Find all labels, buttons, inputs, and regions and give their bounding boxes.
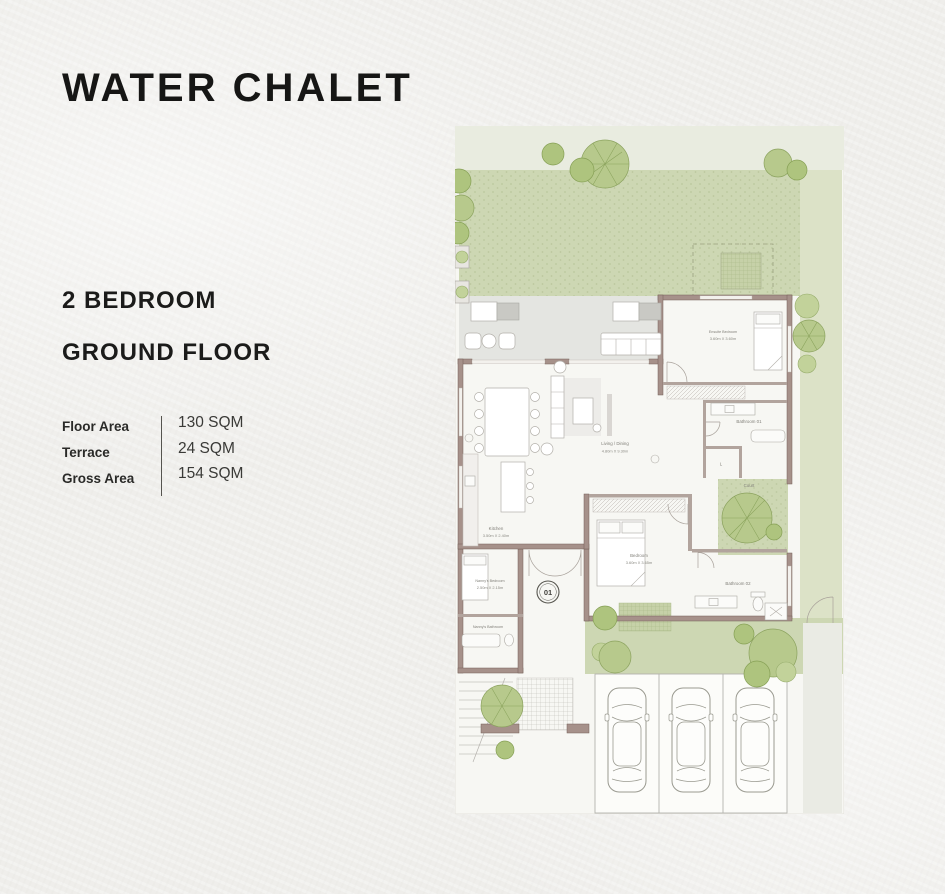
area-row-label: Floor Area	[62, 414, 161, 440]
area-row-label: Terrace	[62, 440, 161, 466]
room-label-bedroom: Bedroom	[630, 553, 648, 558]
unit-type-label: 2 BEDROOM	[62, 287, 216, 315]
area-row-value: 154 SQM	[178, 461, 243, 487]
room-dims-bedroom: 3.60m X 3.65m	[626, 560, 652, 565]
area-table-divider	[161, 416, 162, 496]
side-garden-strip	[800, 170, 842, 621]
area-table-values: 130 SQM 24 SQM 154 SQM	[178, 410, 243, 487]
area-row-value: 24 SQM	[178, 436, 243, 462]
area-table: Floor Area Terrace Gross Area 130 SQM 24…	[62, 414, 243, 496]
unit-number-badge: 01	[537, 581, 559, 603]
room-label-court: Court	[744, 483, 756, 488]
outdoor-shower	[765, 603, 787, 620]
room-label-kitchen: Kitchen	[489, 526, 504, 531]
area-row-value: 130 SQM	[178, 410, 243, 436]
entry-deck	[517, 678, 573, 730]
room-label-living: Living / Dining	[601, 441, 629, 446]
car-icon	[605, 688, 649, 792]
room-dims-ensuite: 3.60m X 3.60m	[710, 336, 736, 341]
floor-label: GROUND FLOOR	[62, 339, 271, 367]
car-icon	[669, 688, 713, 792]
room-label-bathroom02: Bathroom 02	[725, 581, 751, 586]
room-label-bathroom01: Bathroom 01	[736, 419, 762, 424]
page-title: WATER CHALET	[62, 66, 413, 111]
room-dims-living: 4.80m X 9.30m	[602, 449, 628, 454]
room-label-nanny-bedroom: Nanny's Bedroom	[475, 579, 504, 583]
parking-area	[595, 674, 787, 813]
room-label-ensuite: Ensuite Bedroom	[709, 330, 737, 334]
unit-number: 01	[544, 588, 552, 597]
area-row-label: Gross Area	[62, 466, 161, 492]
side-path	[803, 623, 842, 813]
room-label-nanny-bathroom: Nanny's Bathroom	[473, 625, 503, 629]
area-table-labels: Floor Area Terrace Gross Area	[62, 414, 161, 492]
room-dims-nanny-bedroom: 2.50m X 2.15m	[477, 585, 503, 590]
car-icon	[733, 688, 777, 792]
room-dims-kitchen: 3.50m X 2.40m	[483, 533, 509, 538]
floor-plan: 01	[455, 126, 844, 814]
